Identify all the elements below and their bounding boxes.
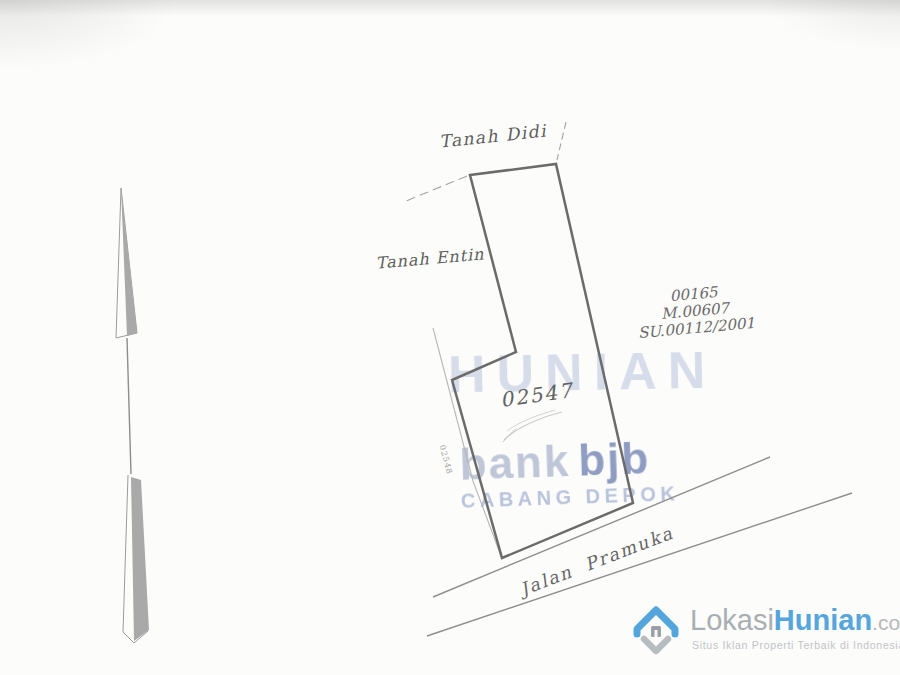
logo-wordmark: LokasiHunian.com: [690, 604, 900, 637]
logo-tagline: Situs Iklan Properti Terbaik di Indonesi…: [692, 639, 900, 651]
logo-tld: .com: [872, 611, 900, 634]
logo-word-hunian: Hunian: [774, 604, 872, 636]
scanned-survey-page: HUNIAN bankbjb CABANG DEPOK: [0, 0, 900, 675]
north-arrow: [116, 188, 149, 643]
survey-linework: [0, 0, 900, 675]
logo-word-lokasi: Lokasi: [690, 604, 774, 636]
pencil-scribble: [503, 410, 562, 442]
lokasihunian-logo: LokasiHunian.com Situs Iklan Properti Te…: [628, 598, 894, 664]
house-pin-icon: [628, 600, 686, 660]
